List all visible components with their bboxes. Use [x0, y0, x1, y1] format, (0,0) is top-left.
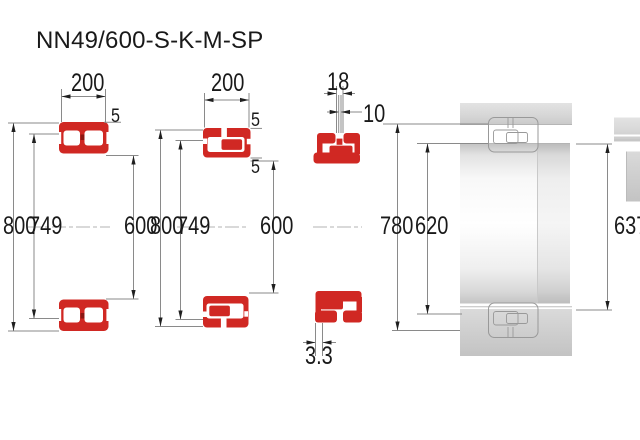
- bearing2-flange-top-label: 5: [251, 111, 260, 130]
- bearing2-flange-mid-label: 5: [251, 158, 260, 177]
- bearing3-taper-offset-label: 3.3: [305, 344, 333, 369]
- bearing3-raceway-diameter-label: 780: [380, 214, 413, 239]
- render-dimensions: [576, 144, 612, 310]
- bearing3-groove-width-label: 18: [327, 70, 349, 95]
- product-render: [460, 103, 640, 356]
- bearing2-bore-label: 600: [260, 214, 293, 239]
- bearing1-rib-diameter-label: 749: [29, 214, 62, 239]
- bearing-drawing: [0, 0, 640, 440]
- bearing1-cross-section: [59, 122, 109, 331]
- render-shoulder-diameter-label: 637: [614, 214, 640, 239]
- bearing1-flange-label: 5: [111, 107, 120, 126]
- bearing1-width-label: 200: [71, 71, 104, 96]
- bearing2-width-label: 200: [211, 71, 244, 96]
- bearing3-hole-diameter-label: 10: [363, 102, 385, 127]
- render-cropped-part: [614, 118, 640, 202]
- drawing-canvas: NN49/600-S-K-M-SP 200 5 800 749 600 200 …: [0, 0, 640, 440]
- bearing3-cross-section: [314, 133, 363, 323]
- page-title: NN49/600-S-K-M-SP: [36, 29, 263, 53]
- bearing3-rib-diameter-label: 620: [415, 214, 448, 239]
- bearing2-rib-diameter-label: 749: [177, 214, 210, 239]
